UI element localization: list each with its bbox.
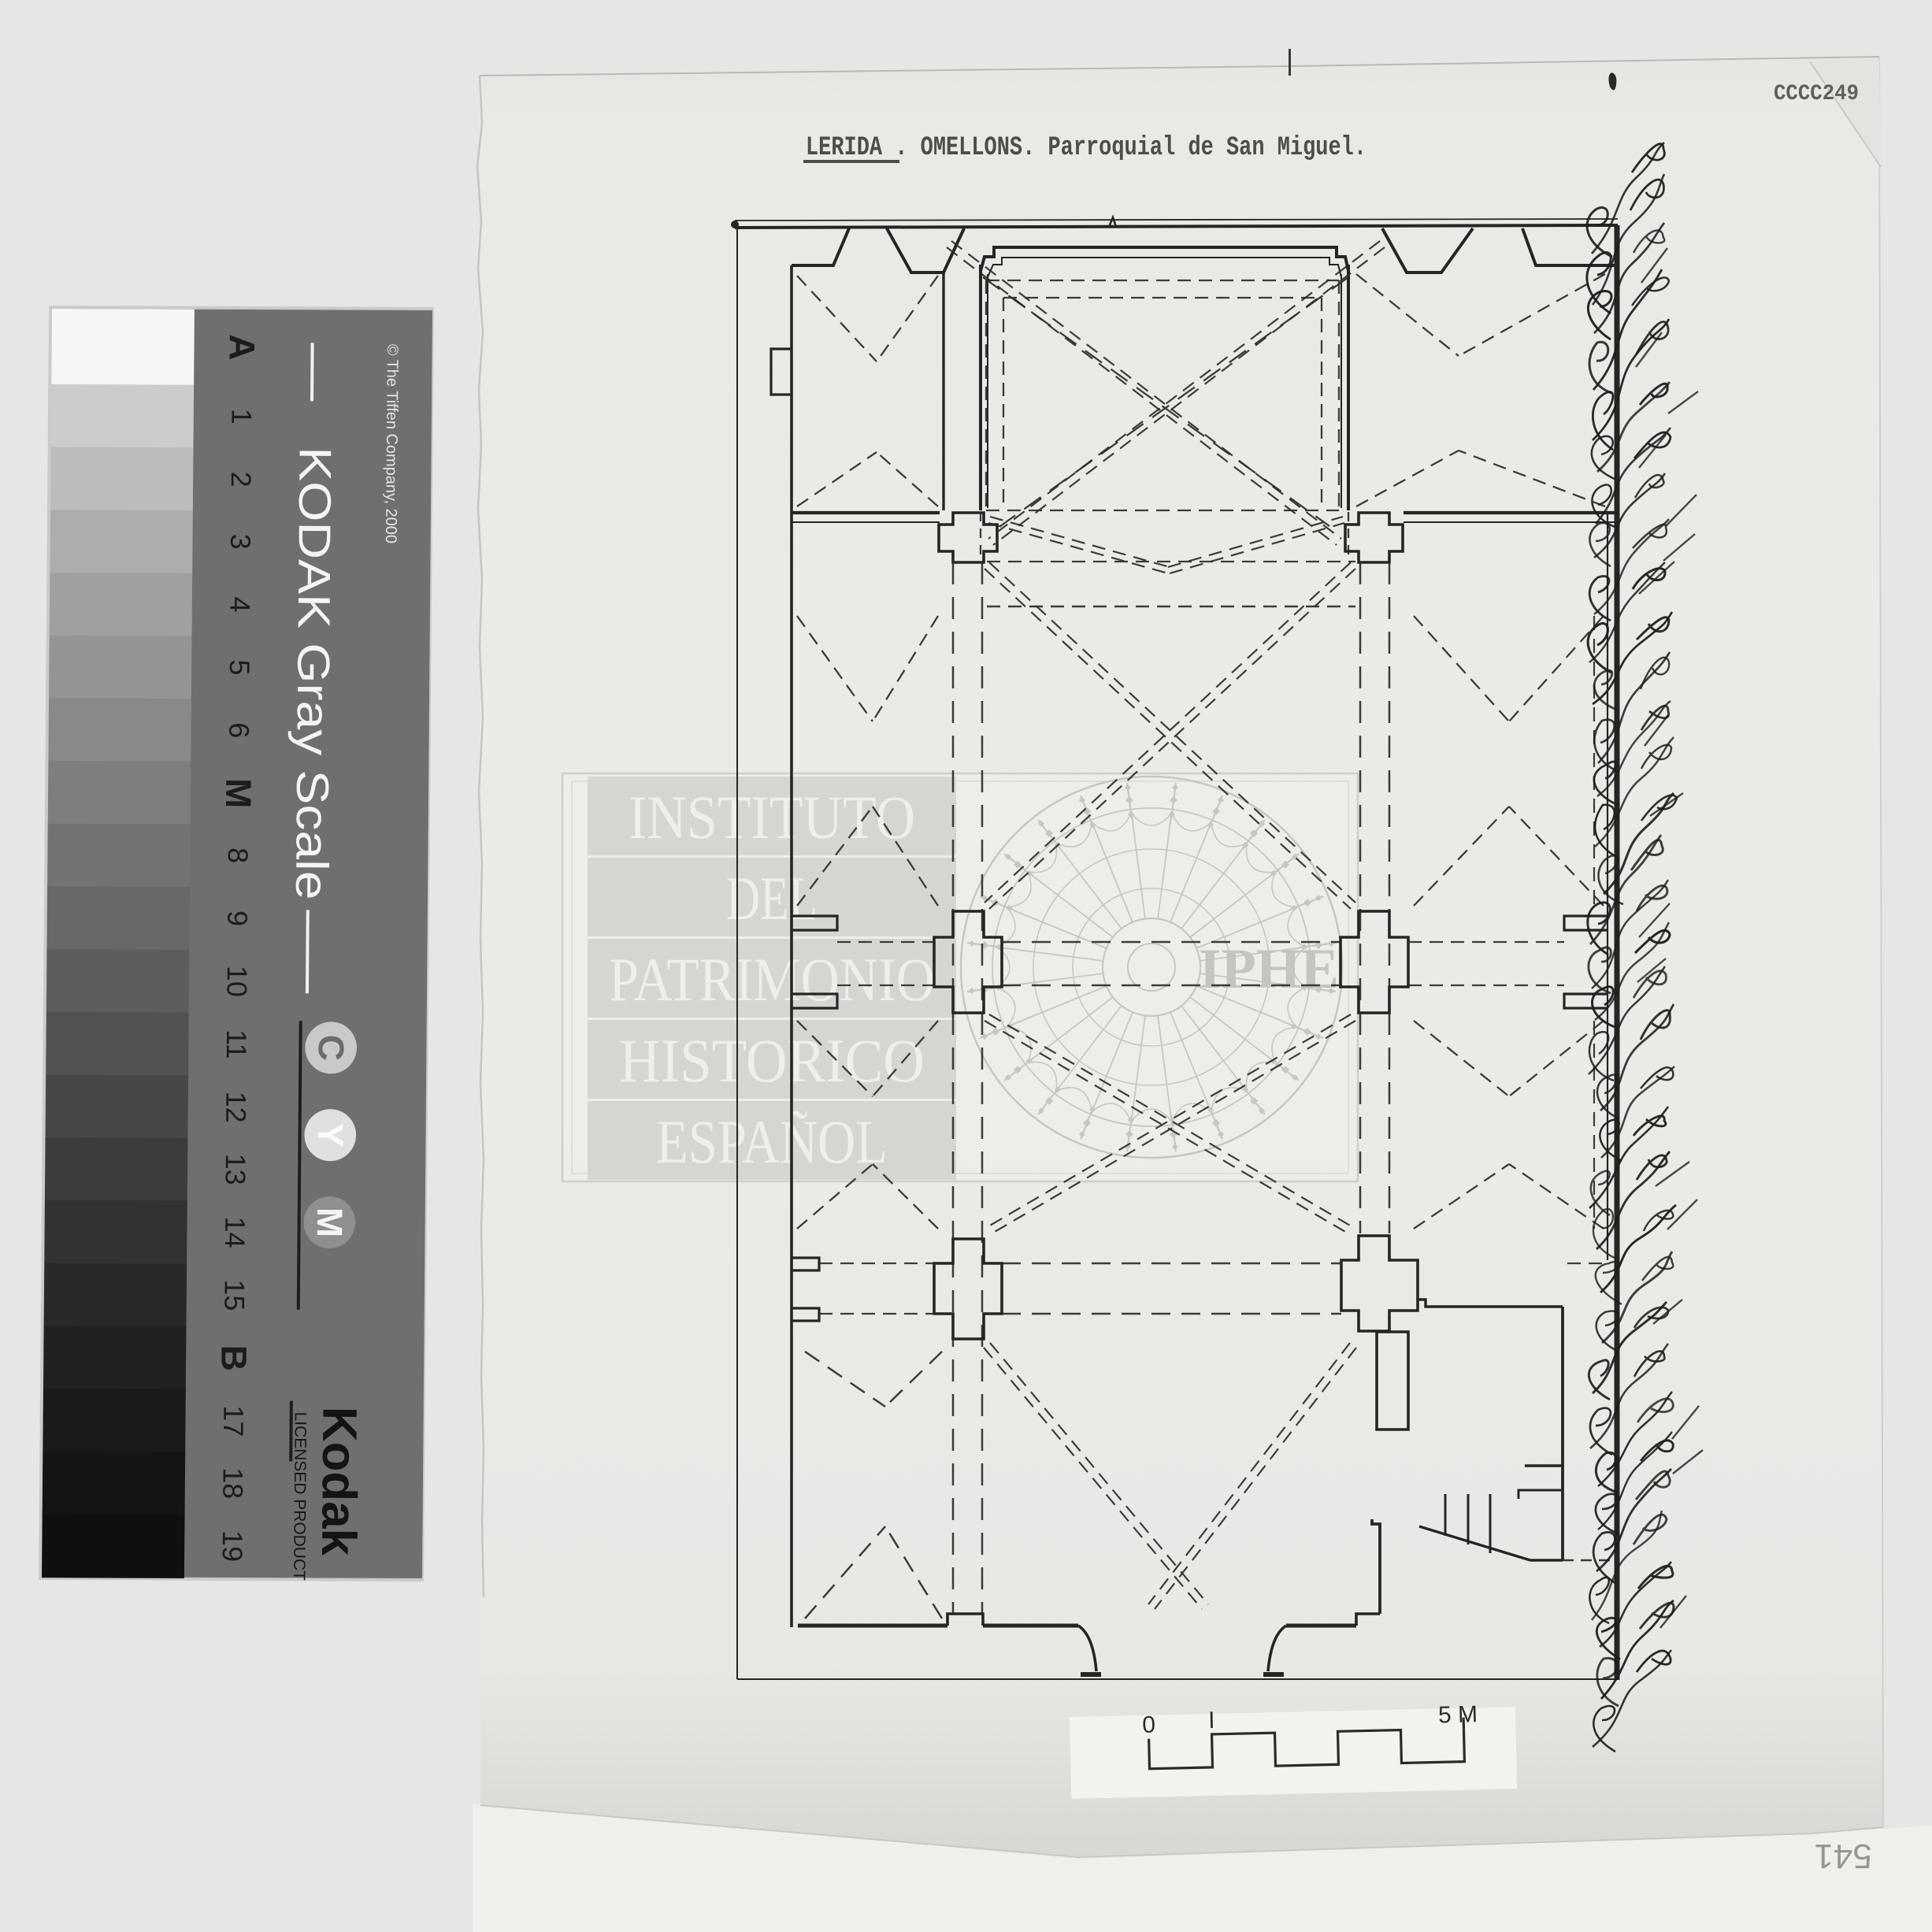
svg-text:A: A	[222, 334, 262, 360]
svg-text:15: 15	[218, 1279, 250, 1311]
svg-text:14: 14	[219, 1216, 250, 1248]
svg-text:M: M	[310, 1207, 350, 1237]
svg-text:4: 4	[224, 596, 255, 612]
svg-text:C: C	[311, 1035, 351, 1061]
svg-text:PATRIMONIO: PATRIMONIO	[609, 945, 935, 1014]
svg-text:B: B	[213, 1345, 254, 1371]
svg-text:1: 1	[225, 409, 257, 425]
svg-text:IPHE: IPHE	[1199, 937, 1339, 1000]
svg-text:19: 19	[217, 1530, 248, 1562]
svg-text:5: 5	[224, 659, 255, 675]
svg-text:18: 18	[217, 1467, 248, 1499]
svg-text:2: 2	[225, 472, 257, 488]
svg-text:8: 8	[222, 847, 254, 863]
svg-text:Y: Y	[310, 1123, 350, 1148]
svg-text:HISTORICO: HISTORICO	[619, 1026, 925, 1095]
svg-text:© The Tiffen Company, 2000: © The Tiffen Company, 2000	[382, 344, 401, 543]
svg-text:11: 11	[221, 1029, 252, 1059]
svg-text:541: 541	[1814, 1837, 1871, 1875]
svg-text:INSTITUTO: INSTITUTO	[629, 783, 915, 851]
svg-text:I: I	[1208, 1708, 1215, 1734]
svg-text:CCCC249: CCCC249	[1774, 82, 1859, 106]
svg-text:LICENSED PRODUCT: LICENSED PRODUCT	[290, 1412, 310, 1582]
svg-text:10: 10	[221, 966, 253, 997]
svg-text:12: 12	[220, 1092, 251, 1123]
svg-text:M: M	[218, 778, 258, 808]
svg-text:5 M: 5 M	[1438, 1701, 1478, 1728]
svg-text:3: 3	[224, 534, 256, 550]
svg-text:KODAK Gray Scale: KODAK Gray Scale	[286, 447, 339, 900]
svg-text:0: 0	[1142, 1712, 1155, 1738]
svg-text:17: 17	[217, 1405, 249, 1437]
svg-text:6: 6	[223, 722, 254, 738]
svg-text:9: 9	[221, 910, 253, 926]
svg-text:13: 13	[220, 1154, 251, 1185]
svg-text:LERIDA . OMELLONS. Parroquial: LERIDA . OMELLONS. Parroquial de San Mig…	[806, 133, 1366, 163]
svg-text:ESPAÑOL: ESPAÑOL	[656, 1107, 888, 1176]
svg-text:Kodak: Kodak	[311, 1407, 366, 1556]
